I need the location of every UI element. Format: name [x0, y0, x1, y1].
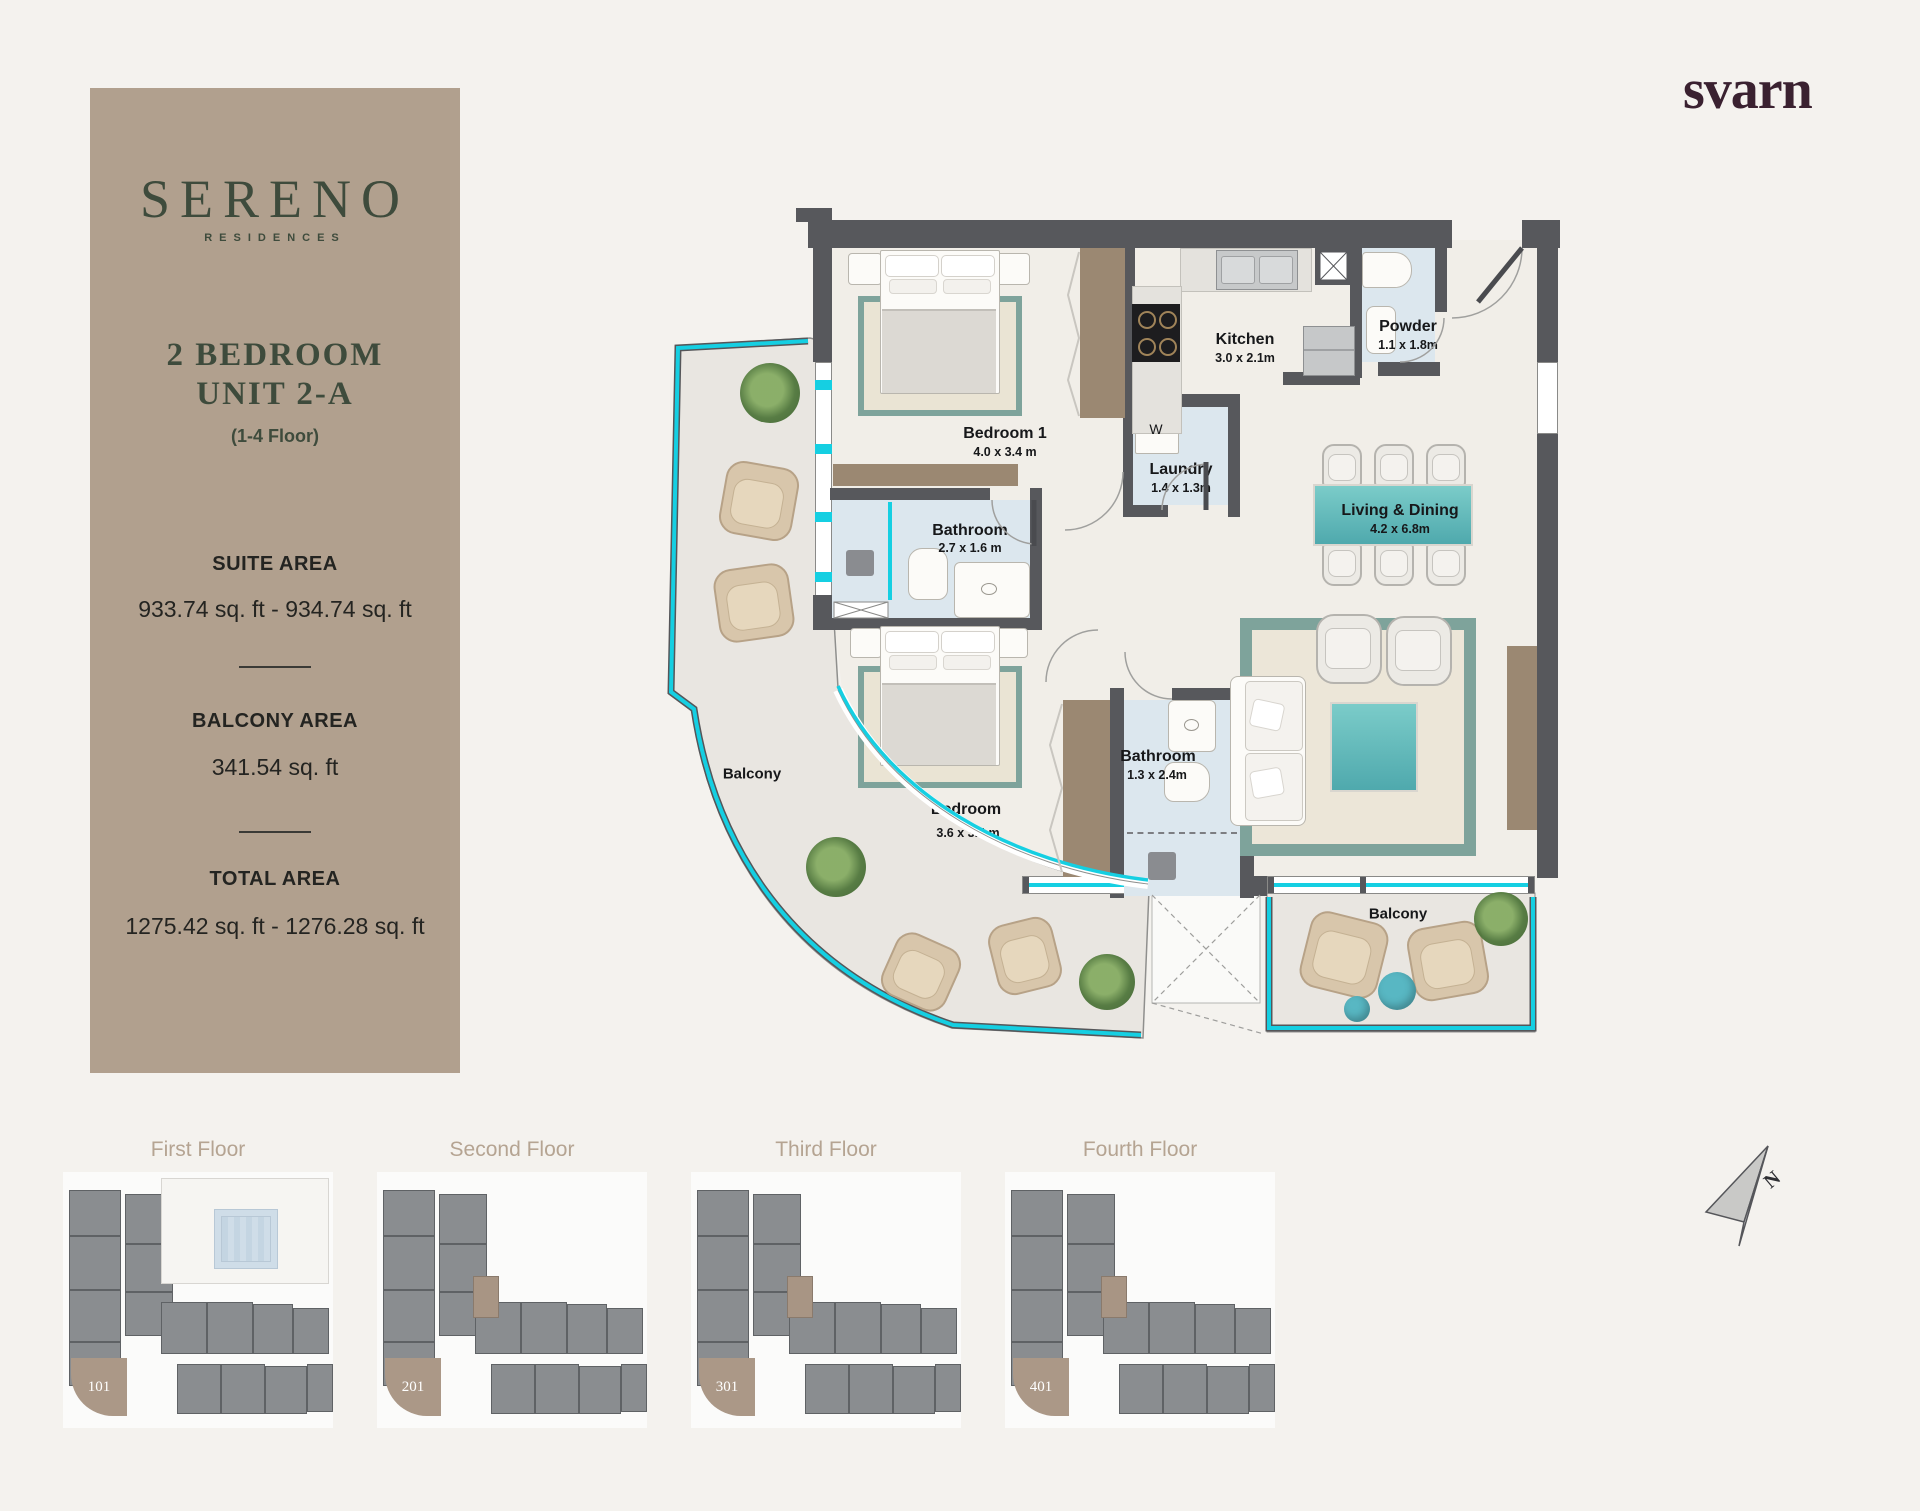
unit-block — [69, 1236, 121, 1290]
wall-duct-column — [1315, 248, 1352, 285]
armchair — [1386, 616, 1452, 686]
kitchen-sink — [1216, 250, 1298, 290]
bed — [880, 626, 1000, 766]
balcony-area-value: 341.54 sq. ft — [90, 754, 460, 781]
room-label-kitchen: Kitchen — [1216, 331, 1275, 349]
dining-chair — [1374, 540, 1414, 586]
unit-block — [1011, 1290, 1063, 1342]
shower-glass — [888, 502, 892, 600]
plant — [806, 837, 866, 897]
room-label-laundry: Laundry — [1149, 461, 1212, 479]
unit-title: 2 BEDROOM UNIT 2-A — [90, 336, 460, 414]
unit-block — [935, 1364, 961, 1412]
dining-chair — [1322, 540, 1362, 586]
window-glass — [815, 444, 832, 454]
room-dims-powder: 1.1 x 1.8m — [1378, 338, 1438, 352]
site-plan — [161, 1178, 329, 1284]
window-right — [1537, 362, 1558, 434]
balcony-chair — [711, 561, 797, 645]
pool — [214, 1209, 278, 1269]
room-dims-bathroom1: 2.7 x 1.6 m — [938, 541, 1001, 555]
sereno-logo: SERENO — [90, 168, 460, 230]
unit-block — [1011, 1190, 1063, 1236]
unit-block — [253, 1304, 293, 1354]
stove — [1132, 304, 1180, 362]
plant — [1079, 954, 1135, 1010]
total-area-value: 1275.42 sq. ft - 1276.28 sq. ft — [90, 913, 460, 940]
unit-block — [1235, 1308, 1271, 1354]
fridge — [1303, 326, 1355, 376]
wall-left-upper — [813, 220, 832, 362]
unit-title-line1: 2 BEDROOM — [167, 337, 384, 373]
tv-console — [1507, 646, 1537, 830]
window-bottom-right — [1267, 876, 1535, 894]
unit-block — [221, 1364, 265, 1414]
suite-area-value: 933.74 sq. ft - 934.74 sq. ft — [90, 596, 460, 623]
window-left — [815, 362, 832, 602]
pouf — [1378, 972, 1416, 1010]
room-label-balcony-right: Balcony — [1369, 906, 1427, 923]
wall-right — [1537, 248, 1558, 878]
suite-area-label: SUITE AREA — [90, 553, 460, 576]
unit-block — [1119, 1364, 1163, 1414]
armchair — [1316, 614, 1382, 684]
unit-block — [567, 1304, 607, 1354]
plant — [740, 363, 800, 423]
total-area-label: TOTAL AREA — [90, 868, 460, 891]
wardrobe — [1080, 248, 1125, 418]
pouf — [1344, 996, 1370, 1022]
divider — [239, 831, 311, 833]
nightstand — [850, 628, 882, 658]
sink-vanity — [1168, 700, 1216, 752]
unit-block — [1249, 1364, 1275, 1412]
unit-block — [69, 1190, 121, 1236]
floor-thumbnail-2: 201 — [377, 1172, 647, 1428]
room-dims-bedroom1: 4.0 x 3.4 m — [973, 445, 1036, 459]
unit-block — [849, 1364, 893, 1414]
floor-thumbnail-3: 301 — [691, 1172, 961, 1428]
unit-block — [697, 1236, 749, 1290]
unit-block — [383, 1190, 435, 1236]
toilet — [908, 548, 948, 600]
plant — [1474, 892, 1528, 946]
wall-bathroom2-left — [1110, 688, 1124, 898]
unit-block — [697, 1290, 749, 1342]
unit-block — [1149, 1302, 1195, 1354]
wall-laundry-bottom — [1123, 505, 1168, 517]
floor-thumbnail-1: 101 — [63, 1172, 333, 1428]
unit-block — [1011, 1236, 1063, 1290]
unit-block — [1163, 1364, 1207, 1414]
wall-laundry-right — [1228, 407, 1240, 517]
unit-block — [1067, 1194, 1115, 1244]
room-dims-living-dining: 4.2 x 6.8m — [1370, 522, 1430, 536]
nightstand — [848, 253, 882, 285]
unit-block — [491, 1364, 535, 1414]
compass-icon: N — [1706, 1146, 1785, 1246]
room-label-balcony-left: Balcony — [723, 766, 781, 783]
dining-chair — [1426, 540, 1466, 586]
core-block — [787, 1276, 813, 1318]
developer-logo: svarn — [1683, 58, 1843, 122]
unit-block — [579, 1366, 621, 1414]
unit-block — [753, 1194, 801, 1244]
unit-block — [383, 1236, 435, 1290]
wall-top-left — [808, 220, 1452, 248]
room-dims-bedroom2: 3.6 x 3.4 m — [936, 826, 999, 840]
room-dims-laundry: 1.4 x 1.3m — [1151, 481, 1211, 495]
unit-block — [535, 1364, 579, 1414]
wall-top-right — [1522, 220, 1560, 248]
unit-block — [161, 1302, 207, 1354]
wall-bathroom1-right — [1030, 488, 1042, 630]
divider — [239, 666, 311, 668]
room-label-bedroom1: Bedroom 1 — [963, 425, 1047, 443]
room-label-bedroom2: Bedroom — [931, 801, 1001, 819]
floors-note: (1-4 Floor) — [90, 426, 460, 447]
unit-block — [307, 1364, 333, 1412]
unit-block — [177, 1364, 221, 1414]
wall-entry-stub — [1435, 248, 1447, 312]
svg-text:N: N — [1760, 1166, 1786, 1192]
shower-glass — [1127, 832, 1237, 834]
unit-block — [207, 1302, 253, 1354]
coffee-table — [1330, 702, 1418, 792]
balcony-chair — [984, 913, 1065, 999]
highlighted-unit: 101 — [71, 1358, 127, 1416]
room-label-bathroom1: Bathroom — [932, 522, 1008, 540]
highlighted-unit: 301 — [699, 1358, 755, 1416]
room-label-bathroom2: Bathroom — [1120, 748, 1196, 766]
unit-block — [293, 1308, 329, 1354]
wall-powder-bottom — [1378, 362, 1440, 376]
sereno-logo-subtitle: RESIDENCES — [90, 232, 460, 244]
core-block — [1101, 1276, 1127, 1318]
unit-block — [383, 1290, 435, 1342]
room-dims-bathroom2: 1.3 x 2.4m — [1127, 768, 1187, 782]
bathtub — [1362, 252, 1412, 288]
unit-block — [621, 1364, 647, 1412]
unit-block — [265, 1366, 307, 1414]
unit-block — [881, 1304, 921, 1354]
unit-block — [697, 1190, 749, 1236]
highlighted-unit: 201 — [385, 1358, 441, 1416]
window-glass — [815, 380, 832, 390]
unit-block — [835, 1302, 881, 1354]
unit-block — [1207, 1366, 1249, 1414]
unit-title-line2: UNIT 2-A — [196, 376, 354, 412]
core-block — [473, 1276, 499, 1318]
bed — [880, 250, 1000, 394]
shower-head — [1148, 852, 1176, 880]
nightstand — [996, 628, 1028, 658]
unit-block — [439, 1194, 487, 1244]
unit-block — [1195, 1304, 1235, 1354]
floor-thumbnail-4: 401 — [1005, 1172, 1275, 1428]
unit-block — [521, 1302, 567, 1354]
unit-block — [921, 1308, 957, 1354]
floor-thumbnail-label: Third Floor — [691, 1138, 961, 1162]
floor-thumbnail-label: Fourth Floor — [1005, 1138, 1275, 1162]
dresser — [833, 464, 1018, 486]
unit-block — [607, 1308, 643, 1354]
room-label-powder: Powder — [1379, 318, 1437, 336]
unit-block — [893, 1366, 935, 1414]
window-glass — [815, 572, 832, 582]
room-dims-kitchen: 3.0 x 2.1m — [1215, 351, 1275, 365]
unit-block — [69, 1290, 121, 1342]
balcony-chair — [716, 458, 802, 544]
balcony-area-label: BALCONY AREA — [90, 710, 460, 733]
sink-vanity — [954, 562, 1030, 618]
room-label-living-dining: Living & Dining — [1341, 502, 1458, 520]
wall-bathroom1-top — [830, 488, 990, 500]
unit-block — [805, 1364, 849, 1414]
shower-head — [846, 550, 874, 576]
balcony-chair — [875, 927, 967, 1018]
highlighted-unit: 401 — [1013, 1358, 1069, 1416]
nightstand — [996, 253, 1030, 285]
floor-thumbnail-label: Second Floor — [377, 1138, 647, 1162]
wardrobe — [1063, 700, 1110, 877]
sofa — [1230, 676, 1306, 826]
floor-thumbnail-label: First Floor — [63, 1138, 333, 1162]
window-glass — [815, 512, 832, 522]
brand-panel: SERENO RESIDENCES 2 BEDROOM UNIT 2-A (1-… — [90, 88, 460, 1073]
washer-label: W — [1149, 421, 1162, 437]
